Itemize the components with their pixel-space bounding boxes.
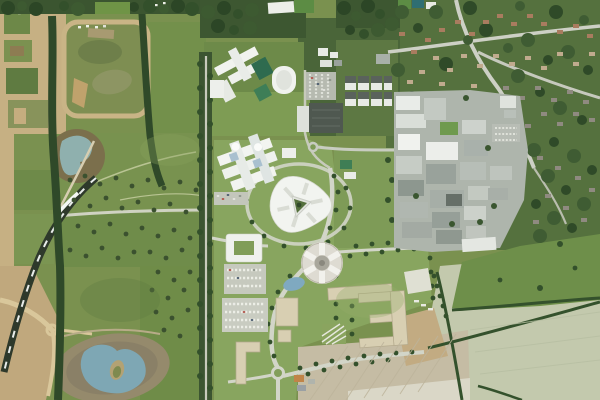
- field-north: [148, 22, 206, 135]
- aerial-image: [0, 0, 600, 400]
- aerial-canvas: [0, 0, 600, 400]
- parkland-field: [58, 213, 206, 267]
- school-north-building: [268, 1, 295, 14]
- hatched-parking: [322, 324, 346, 344]
- tree-lined-corridor: [199, 52, 212, 400]
- campus-court: [340, 160, 352, 169]
- school-west-block: [210, 80, 224, 98]
- complex-parking: [214, 192, 248, 205]
- pale-pad: [404, 268, 432, 294]
- small-white-block: [282, 148, 296, 158]
- tennis-court-north: [412, 0, 424, 8]
- construction-strip-west: [0, 134, 14, 266]
- courtyard-building: [226, 234, 262, 262]
- fenced-plot: [64, 22, 148, 116]
- circular-building: [301, 242, 343, 284]
- green-roof-building: [440, 122, 458, 135]
- surface-parking-west: [222, 264, 268, 332]
- masterplan-roundabout: [273, 368, 284, 379]
- playing-field: [204, 92, 310, 136]
- multi-storey-car-park: [297, 103, 343, 133]
